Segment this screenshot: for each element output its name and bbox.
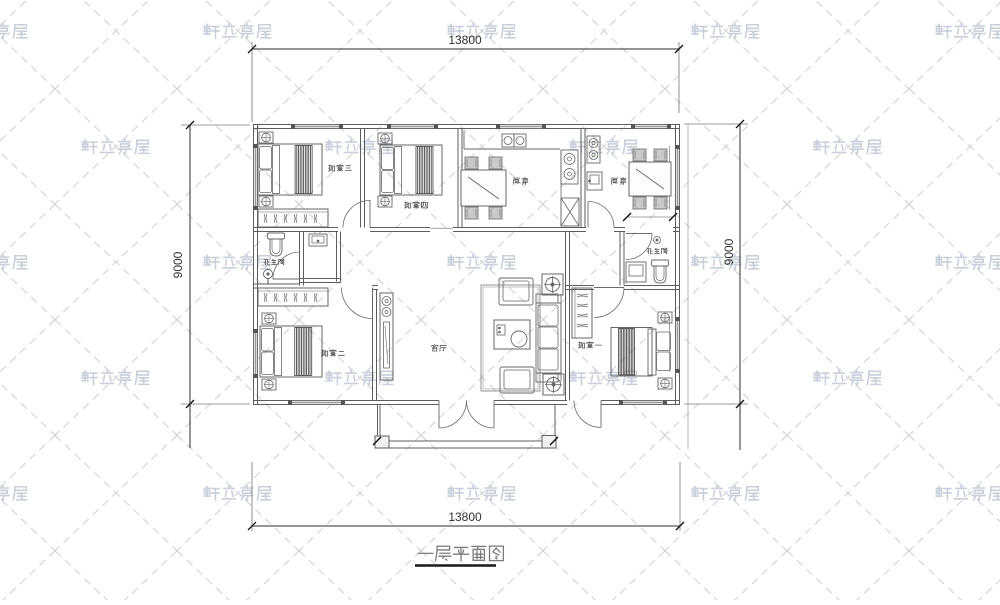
svg-text:9000: 9000 [722,238,736,265]
svg-text:13800: 13800 [448,510,482,524]
svg-text:9000: 9000 [171,251,185,278]
svg-text:13800: 13800 [448,33,482,47]
